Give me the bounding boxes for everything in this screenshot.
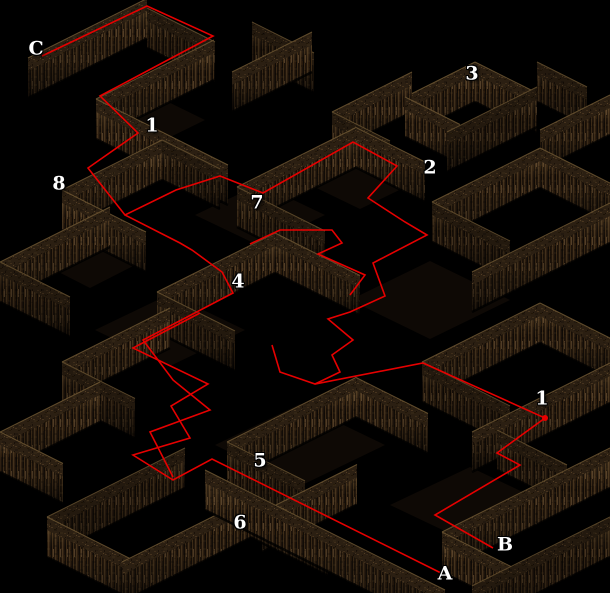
wall-block — [540, 303, 610, 378]
route-endpoint-dot — [542, 415, 548, 421]
wall-blocks — [0, 0, 610, 593]
map-canvas — [0, 0, 610, 593]
dungeon-map: C187234561BA — [0, 0, 610, 593]
